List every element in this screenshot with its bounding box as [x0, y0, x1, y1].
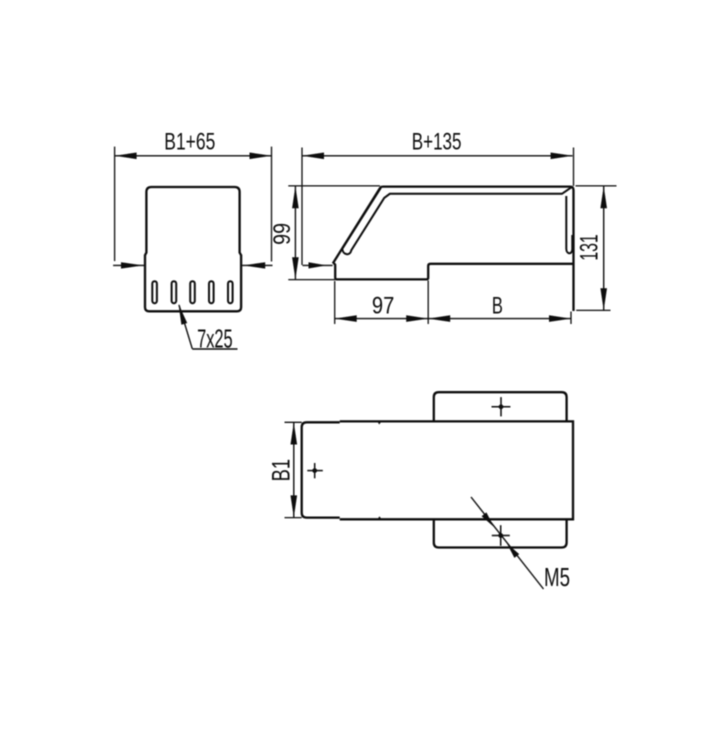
svg-text:B1: B1 — [268, 459, 296, 481]
svg-text:99: 99 — [269, 223, 296, 245]
svg-text:M5: M5 — [544, 562, 570, 592]
svg-text:7x25: 7x25 — [197, 323, 233, 353]
svg-text:B+135: B+135 — [412, 129, 462, 156]
svg-text:B1+65: B1+65 — [164, 129, 215, 156]
svg-text:97: 97 — [372, 292, 394, 319]
svg-text:131: 131 — [576, 234, 604, 260]
svg-text:B: B — [492, 292, 503, 319]
